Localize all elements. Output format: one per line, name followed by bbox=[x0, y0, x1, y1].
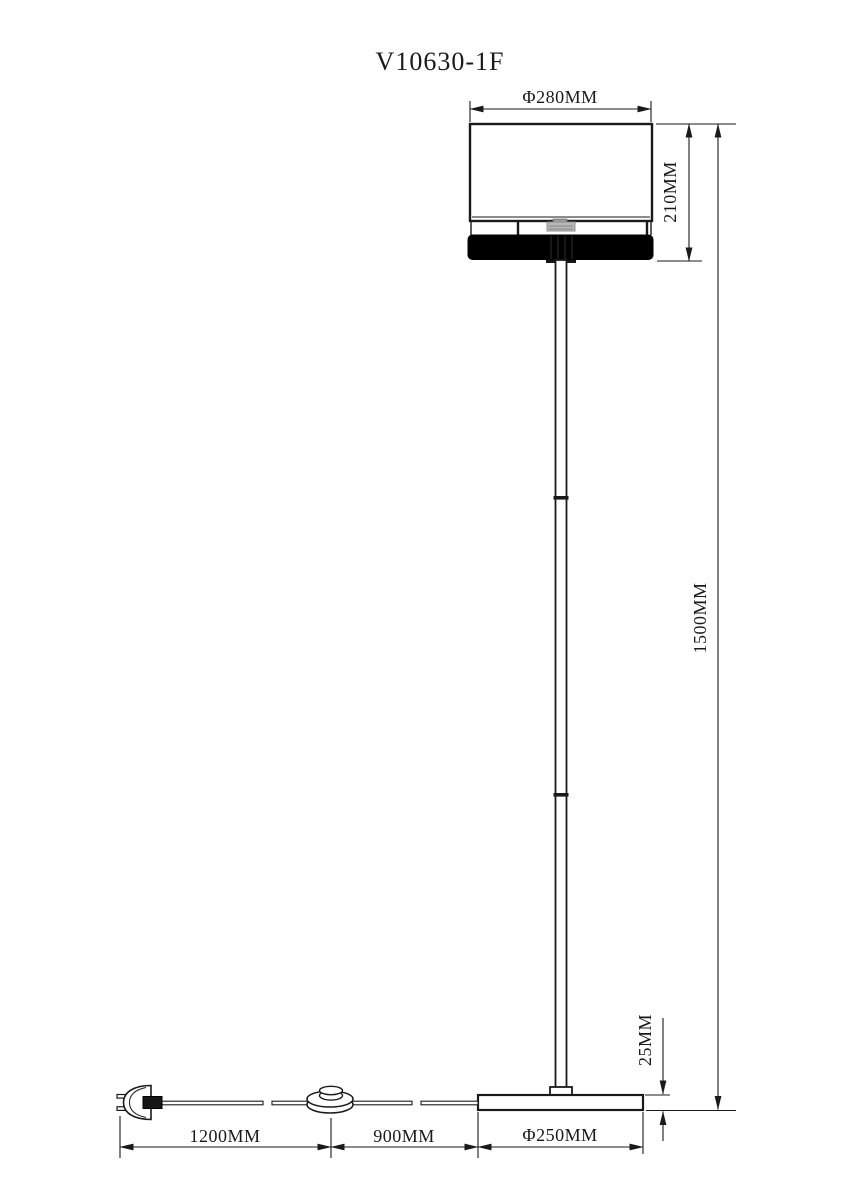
lamp-shade-group bbox=[468, 124, 654, 263]
power-cord-segment bbox=[162, 1101, 263, 1105]
dim-label-total-height: 1500MM bbox=[690, 582, 710, 653]
pole-joint-lower bbox=[554, 793, 569, 797]
dim-label-shade-height: 210MM bbox=[660, 161, 680, 223]
dim-total-height: 1500MM bbox=[646, 124, 736, 1111]
dim-label-shade-diameter: Φ280MM bbox=[522, 87, 597, 107]
floor-lamp-drawing: V10630-1F bbox=[0, 0, 848, 1200]
dim-label-cord-plug-to-switch: 1200MM bbox=[189, 1126, 260, 1146]
switch-button bbox=[320, 1086, 343, 1094]
pole-collar bbox=[550, 1087, 572, 1095]
lamp-shade bbox=[470, 124, 652, 221]
dim-label-base-diameter: Φ250MM bbox=[522, 1125, 597, 1145]
lamp-holder bbox=[547, 222, 575, 231]
pole bbox=[556, 260, 567, 1088]
power-cord-segment bbox=[351, 1101, 412, 1105]
dim-shade-diameter: Φ280MM bbox=[470, 87, 651, 122]
dim-label-cord-switch-to-base: 900MM bbox=[373, 1126, 435, 1146]
power-cord-segment bbox=[272, 1101, 310, 1105]
plug-neck bbox=[143, 1097, 162, 1109]
power-cord-segment bbox=[421, 1101, 478, 1105]
dim-bottom-chain: 1200MM 900MM Φ250MM bbox=[120, 1112, 643, 1158]
drawing-title: V10630-1F bbox=[376, 47, 505, 76]
shade-band bbox=[468, 235, 654, 261]
technical-drawing-page: V10630-1F bbox=[0, 0, 848, 1200]
pole-joint-upper bbox=[554, 496, 569, 500]
foot-switch bbox=[307, 1086, 353, 1113]
pole-group bbox=[550, 260, 572, 1095]
lamp-base bbox=[478, 1095, 643, 1110]
dim-shade-height: 210MM bbox=[656, 124, 736, 261]
dim-base-thickness: 25MM bbox=[635, 1014, 670, 1141]
dim-label-base-thickness: 25MM bbox=[635, 1014, 655, 1066]
power-plug bbox=[117, 1086, 162, 1120]
